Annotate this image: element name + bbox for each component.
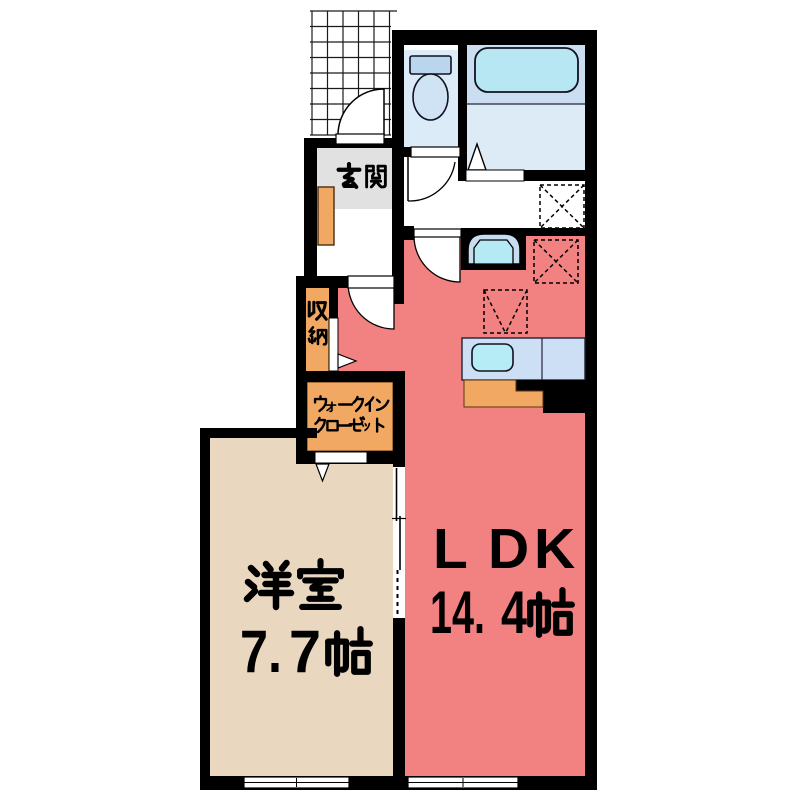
svg-text:D: D [488, 517, 529, 581]
svg-text:7.: 7. [240, 618, 282, 685]
svg-text:L: L [433, 517, 468, 581]
svg-text:4: 4 [501, 579, 527, 646]
svg-text:K: K [534, 517, 575, 581]
svg-text:7: 7 [289, 618, 321, 685]
svg-text:14.: 14. [430, 579, 485, 646]
